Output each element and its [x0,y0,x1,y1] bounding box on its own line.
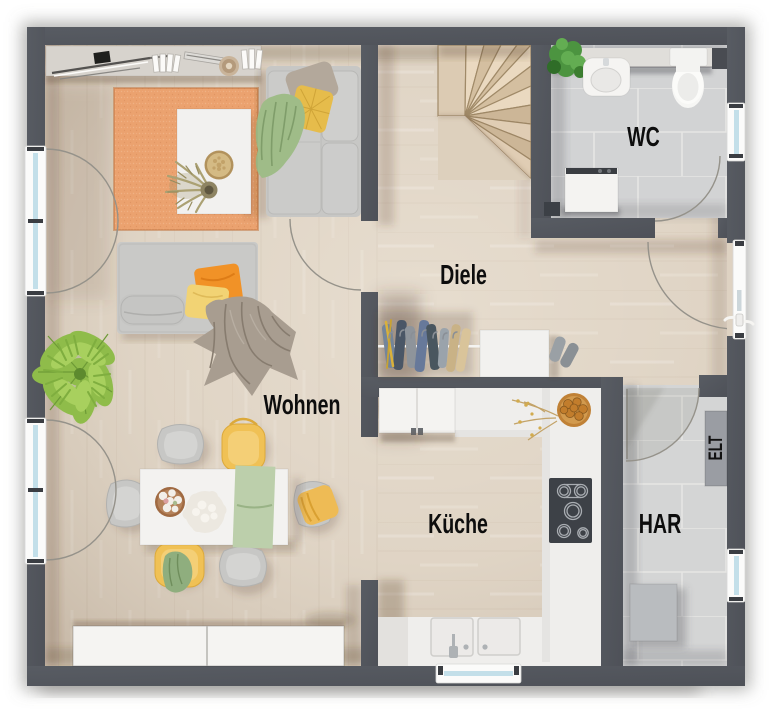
svg-text:Diele: Diele [440,260,487,291]
svg-text:Wohnen: Wohnen [264,390,341,421]
svg-text:ELT: ELT [705,436,727,461]
svg-text:WC: WC [627,122,660,153]
svg-text:HAR: HAR [639,509,681,540]
svg-text:Küche: Küche [428,509,488,540]
